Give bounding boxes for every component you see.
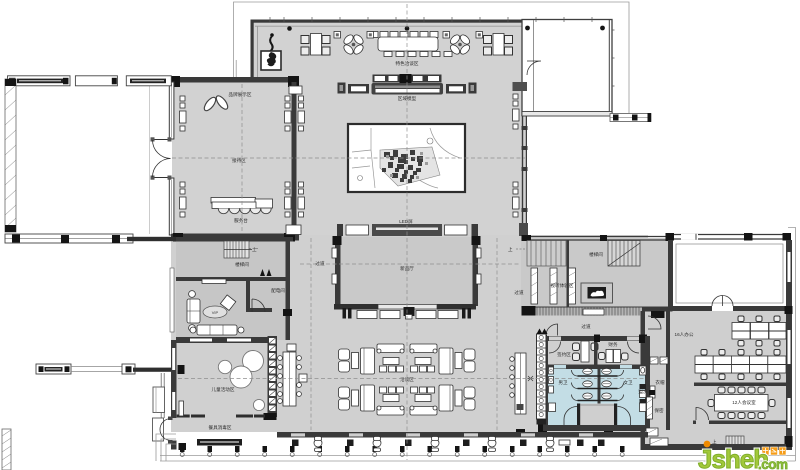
svg-text:衣帽: 衣帽 [655,379,665,386]
svg-text:配电间: 配电间 [271,287,285,294]
svg-text:过道: 过道 [315,260,325,267]
svg-text:16人办公: 16人办公 [675,331,694,338]
svg-text:视听体验区: 视听体验区 [551,282,574,289]
svg-text:上: 上 [508,246,513,252]
svg-text:女卫: 女卫 [623,379,633,386]
svg-text:楼梯间: 楼梯间 [235,261,249,268]
svg-text:品牌展示区: 品牌展示区 [229,91,252,98]
svg-text:保密: 保密 [654,407,664,414]
svg-text:过道: 过道 [514,289,524,296]
svg-text:12人会议室: 12人会议室 [732,399,756,406]
svg-text:楼梯间: 楼梯间 [589,251,603,258]
svg-text:餐具消毒区: 餐具消毒区 [209,424,232,431]
svg-text:.com: .com [758,457,788,470]
svg-text:财务: 财务 [608,341,618,348]
svg-text:过道: 过道 [581,323,591,330]
svg-text:上: 上 [252,246,257,252]
svg-text:VIP: VIP [212,310,219,315]
svg-text:签约区: 签约区 [557,351,571,358]
svg-text:儿童活动区: 儿童活动区 [212,386,235,393]
svg-text:盥洗: 盥洗 [638,388,648,395]
svg-text:服务台: 服务台 [234,217,248,224]
